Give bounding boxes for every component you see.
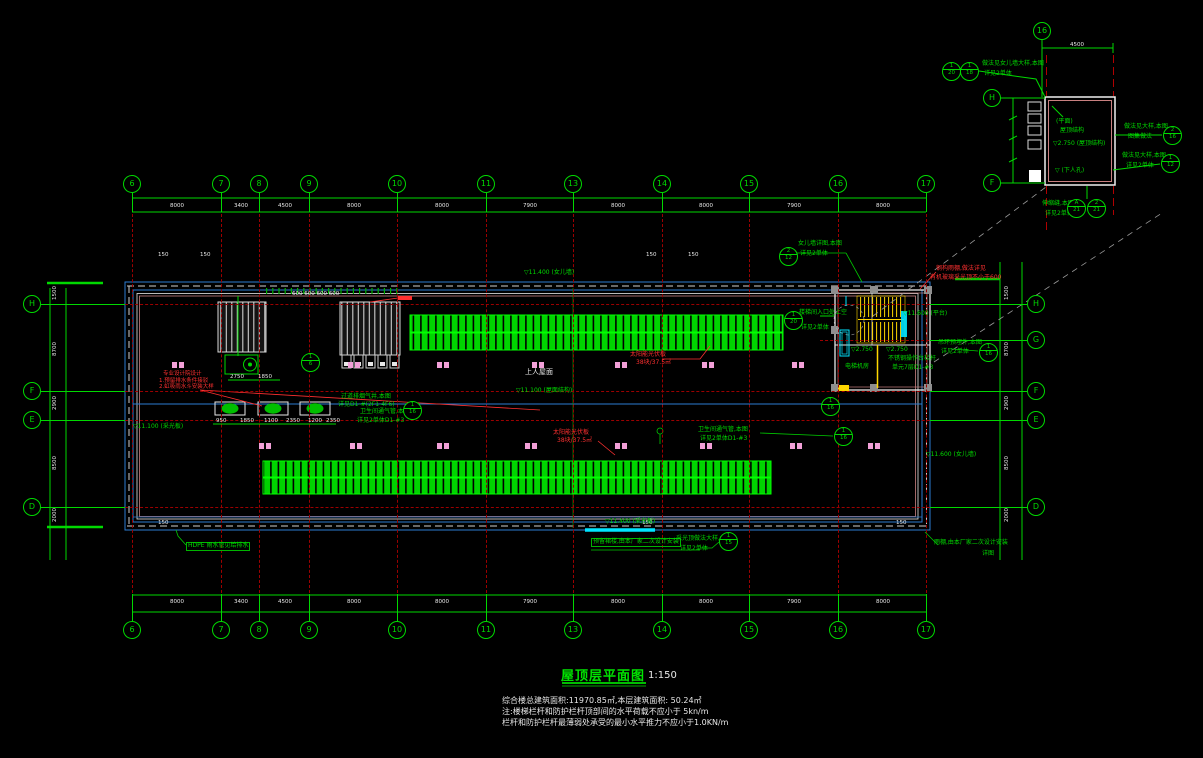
- detail-ref-circle: A21: [1067, 199, 1086, 218]
- dim-text: 150: [158, 252, 169, 258]
- dim-text: 8000: [699, 599, 713, 605]
- axis-bubble-G: G: [1027, 331, 1045, 349]
- dim-text: 2350: [286, 418, 300, 424]
- axis-bubble-8: 8: [250, 621, 268, 639]
- grid-line-vertical: [309, 214, 310, 598]
- annotation: 专业设计院设计: [163, 371, 202, 377]
- dim-text: 4500: [278, 203, 292, 209]
- generated-overlay: 678910111314151617678910111314151617HFED…: [0, 0, 1203, 758]
- drain-marker: [532, 443, 537, 449]
- axis-bubble-16: 16: [829, 175, 847, 193]
- axis-bubble-10: 10: [388, 175, 406, 193]
- dim-text: 8000: [347, 599, 361, 605]
- axis-bubble-E: E: [1027, 411, 1045, 429]
- dim-text: 8000: [699, 203, 713, 209]
- axis-stub: [749, 594, 750, 621]
- axis-stub: [926, 193, 927, 212]
- drain-marker: [875, 443, 880, 449]
- dim-text: 8700: [1004, 342, 1010, 356]
- detail-ref-circle: 118: [960, 62, 979, 81]
- dim-text: 2750: [230, 374, 244, 380]
- annotation: ▽2.750: [851, 347, 873, 354]
- annotation: 吊环预埋件,本图: [938, 340, 982, 347]
- drain-marker: [437, 362, 442, 368]
- grid-line-vertical: [221, 214, 222, 598]
- axis-stub: [662, 594, 663, 621]
- drain-marker: [172, 362, 177, 368]
- detail-ref-circle: 115: [719, 532, 738, 551]
- dim-text: 3400: [234, 203, 248, 209]
- annotation: HDPE 雨水管见给排水: [186, 542, 250, 551]
- dim-text: 150: [158, 520, 169, 526]
- axis-stub: [309, 193, 310, 212]
- dim-text: 8000: [347, 203, 361, 209]
- drain-marker: [355, 362, 360, 368]
- dim-text: 2350: [326, 418, 340, 424]
- dim-text: 1200: [308, 418, 322, 424]
- grid-line-horizontal: [100, 507, 1010, 508]
- dim-text: 7900: [787, 599, 801, 605]
- annotation: 38块/37.5㎡: [636, 360, 671, 367]
- annotation: ▽11.600 (平台): [903, 311, 947, 318]
- axis-bubble-H: H: [983, 89, 1001, 107]
- annotation: 详见2单体: [801, 325, 829, 332]
- annotation: ▽11.100 (屋面结构): [516, 388, 572, 395]
- detail-ref-circle: 120: [942, 62, 961, 81]
- axis-bubble-F: F: [23, 382, 41, 400]
- axis-stub: [486, 594, 487, 621]
- grid-line-vertical: [486, 214, 487, 598]
- dim-text: 8500: [1004, 456, 1010, 470]
- annotation: 2.虹吸雨水斗安装大样: [159, 384, 214, 390]
- axis-bubble-6: 6: [123, 175, 141, 193]
- axis-stub: [132, 193, 133, 212]
- axis-bubble-14: 14: [653, 175, 671, 193]
- axis-bubble-8: 8: [250, 175, 268, 193]
- dim-text: 2000: [52, 508, 58, 522]
- drawing-scale: 1:150: [648, 670, 677, 681]
- axis-bubble-6: 6: [123, 621, 141, 639]
- dim-text: 3400: [234, 599, 248, 605]
- axis-bubble-9: 9: [300, 175, 318, 193]
- axis-stub: [397, 594, 398, 621]
- annotation: ▽11.600 (女儿墙): [926, 452, 976, 459]
- axis-bubble-E: E: [23, 411, 41, 429]
- annotation: 详见2单体: [941, 349, 969, 356]
- axis-bubble-13: 13: [564, 175, 582, 193]
- detail-ref-circle: 116: [834, 427, 853, 446]
- axis-bubble-16: 16: [829, 621, 847, 639]
- annotation: 详见2单体: [800, 251, 828, 258]
- annotation: 过道排烟气井,本图: [341, 394, 391, 401]
- dim-text: 150: [896, 520, 907, 526]
- dim-text: 600 600 600 600: [292, 291, 339, 297]
- drain-marker: [437, 443, 442, 449]
- dim-text: 8000: [435, 203, 449, 209]
- detail-ref-circle: 116: [979, 343, 998, 362]
- note-line-1: 综合楼总建筑面积:11970.85㎡,本层建筑面积: 50.24㎡: [502, 695, 702, 706]
- axis-stub: [259, 193, 260, 212]
- axis-bubble-15: 15: [740, 621, 758, 639]
- drain-marker: [444, 443, 449, 449]
- axis-bubble-11: 11: [477, 621, 495, 639]
- detail-ref-circle: 116: [403, 401, 422, 420]
- drain-marker: [792, 362, 797, 368]
- axis-bubble-15: 15: [740, 175, 758, 193]
- dim-text: 8000: [170, 599, 184, 605]
- axis-stub: [486, 193, 487, 212]
- detail-ref-circle: 216: [1163, 126, 1182, 145]
- axis-bubble-13: 13: [564, 621, 582, 639]
- axis-bubble-16: 16: [1033, 22, 1051, 40]
- dim-text: 950: [216, 418, 227, 424]
- dim-text: 7900: [523, 599, 537, 605]
- drain-marker: [797, 443, 802, 449]
- annotation: 卫生间通气管,本图: [698, 427, 748, 434]
- dim-text: 8000: [435, 599, 449, 605]
- axis-line: [930, 507, 1027, 508]
- annotation: ▽2.750 (屋顶结构): [1053, 141, 1105, 148]
- axis-stub: [926, 594, 927, 621]
- annotation: 详见2单体D1-#3: [700, 436, 747, 443]
- axis-stub: [838, 193, 839, 212]
- dim-text: 8000: [611, 599, 625, 605]
- dim-text: 7900: [787, 203, 801, 209]
- drain-marker: [266, 443, 271, 449]
- annotation: 详图: [982, 551, 994, 558]
- dim-text: 1500: [1004, 286, 1010, 300]
- axis-stub: [397, 193, 398, 212]
- dim-text: 8000: [611, 203, 625, 209]
- axis-stub: [309, 594, 310, 621]
- drain-marker: [348, 362, 353, 368]
- drain-marker: [622, 443, 627, 449]
- axis-bubble-F: F: [1027, 382, 1045, 400]
- annotation: 太阳能光伏板: [630, 352, 666, 359]
- axis-line: [930, 420, 1027, 421]
- annotation: 预留裙楼,由本厂家二次设计安装: [591, 538, 681, 547]
- dim-text: 2000: [1004, 508, 1010, 522]
- dim-text: 150: [646, 252, 657, 258]
- drain-marker: [525, 443, 530, 449]
- axis-bubble-F: F: [983, 174, 1001, 192]
- annotation: 图集做法: [1128, 134, 1152, 141]
- axis-bubble-17: 17: [917, 175, 935, 193]
- annotation: 38块/37.5㎡: [557, 438, 592, 445]
- axis-stub: [838, 594, 839, 621]
- annotation: 详见2单体: [1126, 163, 1154, 170]
- axis-stub: [259, 594, 260, 621]
- annotation: ▽2.750: [886, 347, 908, 354]
- detail-ref-circle: 120: [784, 311, 803, 330]
- detail-ref-circle: 112: [1161, 154, 1180, 173]
- axis-bubble-10: 10: [388, 621, 406, 639]
- drain-marker: [179, 362, 184, 368]
- drain-marker: [700, 443, 705, 449]
- drain-marker: [790, 443, 795, 449]
- drain-marker: [799, 362, 804, 368]
- dim-text: 1850: [258, 374, 272, 380]
- annotation: 上人屋面: [525, 369, 553, 377]
- axis-line: [930, 391, 1027, 392]
- axis-stub: [749, 193, 750, 212]
- drain-marker: [444, 362, 449, 368]
- drain-marker: [350, 443, 355, 449]
- dim-text: 8000: [876, 203, 890, 209]
- annotation: 有机玻璃采光顶不小于600: [930, 275, 1001, 282]
- dim-text: 2900: [1004, 396, 1010, 410]
- axis-bubble-D: D: [23, 498, 41, 516]
- annotation: 做法见大样,本图: [1124, 124, 1168, 131]
- axis-stub: [573, 594, 574, 621]
- note-line-2: 注:楼梯栏杆和防护栏杆顶部间的水平荷载不应小于 5kn/m: [502, 706, 709, 717]
- grid-line-horizontal: [100, 420, 1010, 421]
- dim-text: 2900: [52, 396, 58, 410]
- axis-stub: [662, 193, 663, 212]
- annotation: 太阳能光伏板: [553, 430, 589, 437]
- axis-stub: [132, 594, 133, 621]
- drain-marker: [868, 443, 873, 449]
- axis-bubble-9: 9: [300, 621, 318, 639]
- annotation: 详见2单体: [984, 71, 1012, 78]
- axis-stub: [221, 193, 222, 212]
- drain-marker: [357, 443, 362, 449]
- dim-text: 150: [200, 252, 211, 258]
- drain-marker: [702, 362, 707, 368]
- grid-line-vertical: [132, 214, 133, 598]
- axis-bubble-17: 17: [917, 621, 935, 639]
- dim-text: 7900: [523, 203, 537, 209]
- grid-line-vertical: [259, 214, 260, 598]
- drain-marker: [707, 443, 712, 449]
- grid-line-horizontal: [100, 304, 1010, 305]
- axis-bubble-H: H: [23, 295, 41, 313]
- axis-stub: [573, 193, 574, 212]
- drain-marker: [709, 362, 714, 368]
- detail-ref-circle: 221: [1087, 199, 1106, 218]
- axis-bubble-7: 7: [212, 175, 230, 193]
- grid-line-vertical: [397, 214, 398, 598]
- axis-bubble-14: 14: [653, 621, 671, 639]
- annotation: 雨棚,由本厂家二次设计安装: [934, 540, 1008, 547]
- dim-text: 4500: [278, 599, 292, 605]
- drawing-title: 屋顶层平面图: [561, 665, 645, 684]
- detail-ref-circle: 212: [779, 247, 798, 266]
- annotation: 楼梯间入口处上空: [799, 310, 847, 317]
- dim-text: 1500: [52, 286, 58, 300]
- cad-canvas: 678910111314151617678910111314151617HFED…: [0, 0, 1203, 758]
- annotation: 屋顶结构: [1060, 128, 1084, 135]
- drain-marker: [259, 443, 264, 449]
- annotation: 单元7层D1-#3: [892, 365, 933, 372]
- dim-text: 8000: [170, 203, 184, 209]
- axis-bubble-D: D: [1027, 498, 1045, 516]
- axis-line: [41, 420, 125, 421]
- annotation: (平面): [1056, 119, 1073, 126]
- dim-text: 8500: [52, 456, 58, 470]
- axis-line: [41, 304, 125, 305]
- annotation: 电梯机房: [845, 364, 869, 371]
- annotation: ▽11.100 (采光板): [133, 424, 183, 431]
- axis-bubble-H: H: [1027, 295, 1045, 313]
- detail-ref-circle: 16: [301, 353, 320, 372]
- dim-text: 4500: [1070, 42, 1084, 48]
- note-line-3: 栏杆和防护栏杆最薄弱处承受的最小水平推力不应小于1.0KN/m: [502, 717, 728, 728]
- annotation: 女儿墙详图,本图: [798, 241, 842, 248]
- annotation: 详见2单体D1-#3: [357, 418, 404, 425]
- annotation: 不锈钢操作台栏杆: [888, 356, 936, 363]
- annotation: 做法见女儿墙大样,本图: [982, 61, 1044, 68]
- drain-marker: [615, 443, 620, 449]
- axis-bubble-7: 7: [212, 621, 230, 639]
- grid-line-vertical: [926, 214, 927, 598]
- axis-bubble-11: 11: [477, 175, 495, 193]
- annotation: 详见2单体: [680, 546, 708, 553]
- axis-line: [930, 304, 1027, 305]
- axis-line: [41, 391, 125, 392]
- drain-marker: [622, 362, 627, 368]
- annotation: 钢构雨棚,做法详见: [936, 266, 986, 273]
- annotation: ▽11.400 (女儿墙): [524, 270, 574, 277]
- dim-text: 1850: [240, 418, 254, 424]
- dim-text: 8000: [876, 599, 890, 605]
- annotation: ▽11.400 (采光板): [605, 519, 655, 526]
- annotation: ▽ (下人孔): [1055, 168, 1084, 175]
- dim-text: 8700: [52, 342, 58, 356]
- annotation: 做法见大样,本图: [1122, 153, 1166, 160]
- dim-text: 150: [688, 252, 699, 258]
- detail-ref-circle: 116: [821, 397, 840, 416]
- grid-line-vertical: [749, 214, 750, 598]
- drain-marker: [615, 362, 620, 368]
- axis-stub: [221, 594, 222, 621]
- dim-text: 1100: [264, 418, 278, 424]
